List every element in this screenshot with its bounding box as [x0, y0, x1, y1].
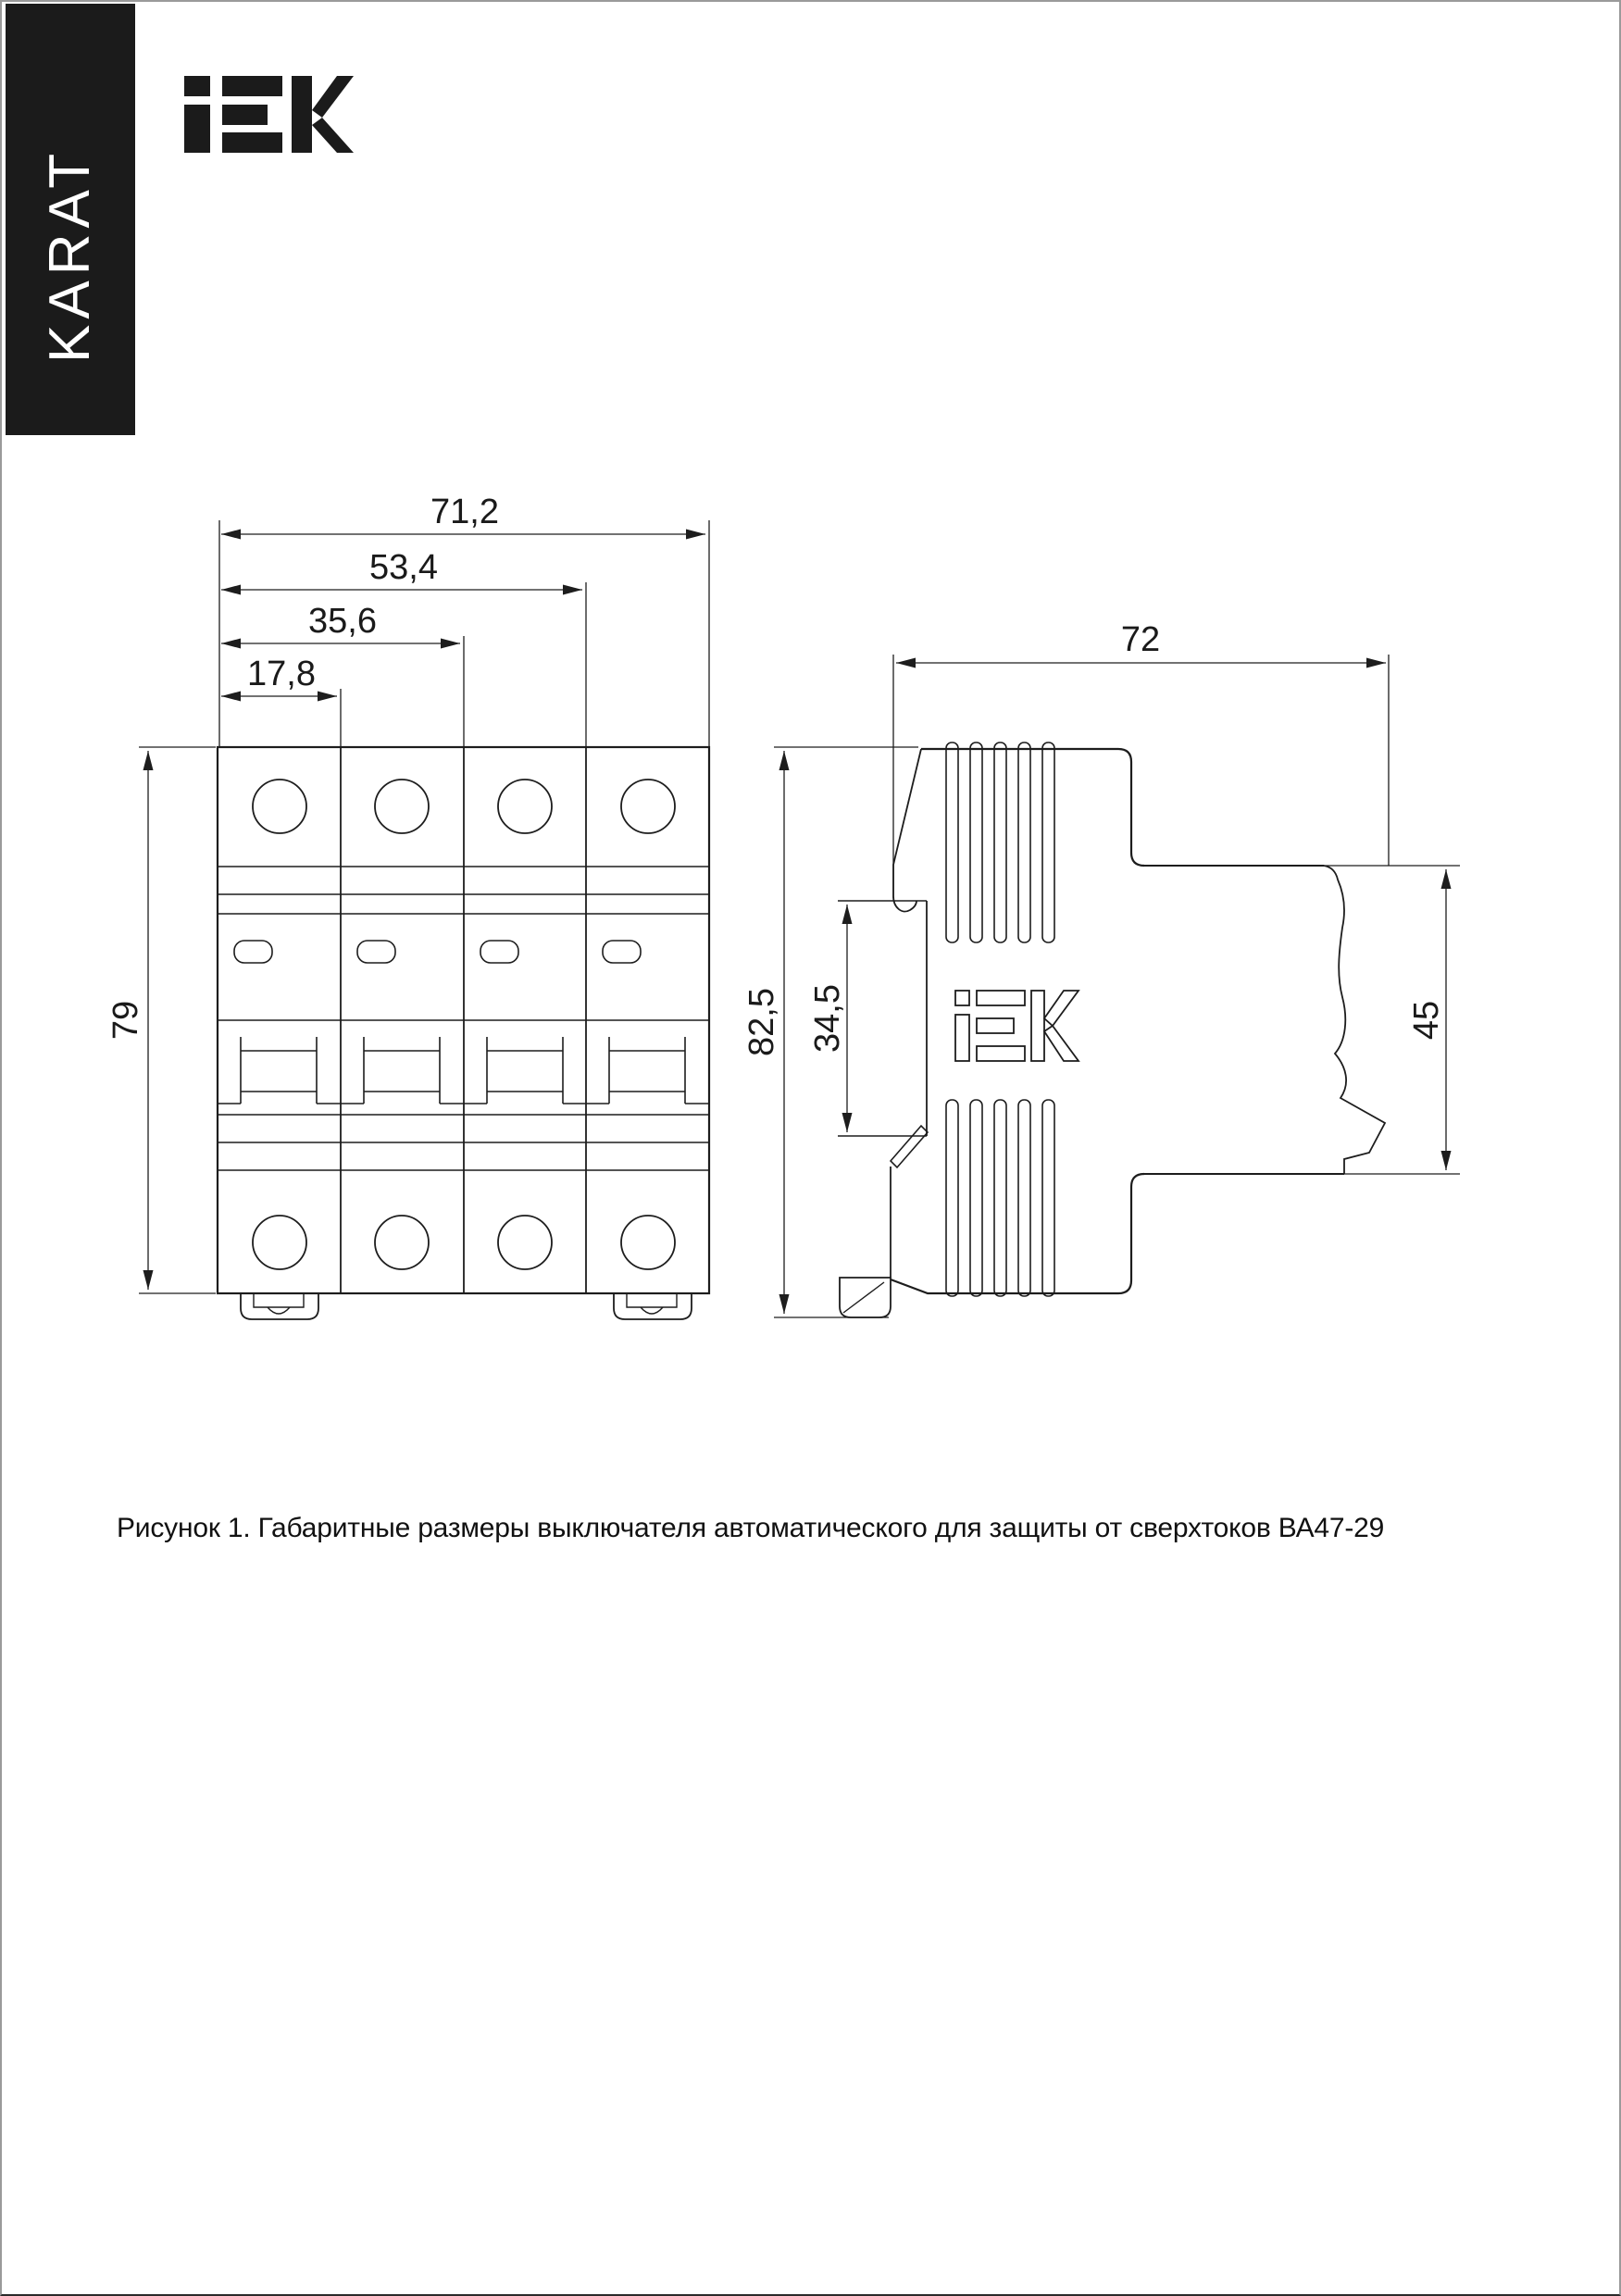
dim-width-two-pole: 35,6 — [308, 602, 377, 641]
din-clips — [241, 1293, 692, 1319]
dim-width-total: 71,2 — [430, 493, 499, 531]
iek-logo-embossed — [955, 991, 1079, 1061]
side-view — [838, 742, 1460, 1317]
dim-depth: 72 — [1121, 620, 1160, 659]
document-page: KARAT — [0, 0, 1621, 2296]
side-view-dimensions — [774, 655, 1446, 1317]
iek-logo — [184, 76, 354, 153]
dim-height-total: 82,5 — [742, 988, 781, 1056]
front-view-dimensions — [139, 520, 709, 1293]
vent-slots-top — [946, 742, 1054, 942]
dim-din-channel: 34,5 — [808, 984, 847, 1053]
dim-height-front: 79 — [106, 1001, 145, 1040]
dim-width-three-pole: 53,4 — [369, 548, 438, 587]
dimension-drawing-svg: 71,2 53,4 35,6 17,8 79 — [2, 2, 1621, 2296]
figure-caption: Рисунок 1. Габаритные размеры выключател… — [117, 1513, 1505, 1544]
vent-slots-bottom — [946, 1100, 1054, 1296]
label-windows — [234, 941, 641, 963]
front-view — [218, 747, 709, 1319]
dim-front-height: 45 — [1407, 1001, 1446, 1040]
dim-width-one-pole: 17,8 — [247, 655, 316, 693]
